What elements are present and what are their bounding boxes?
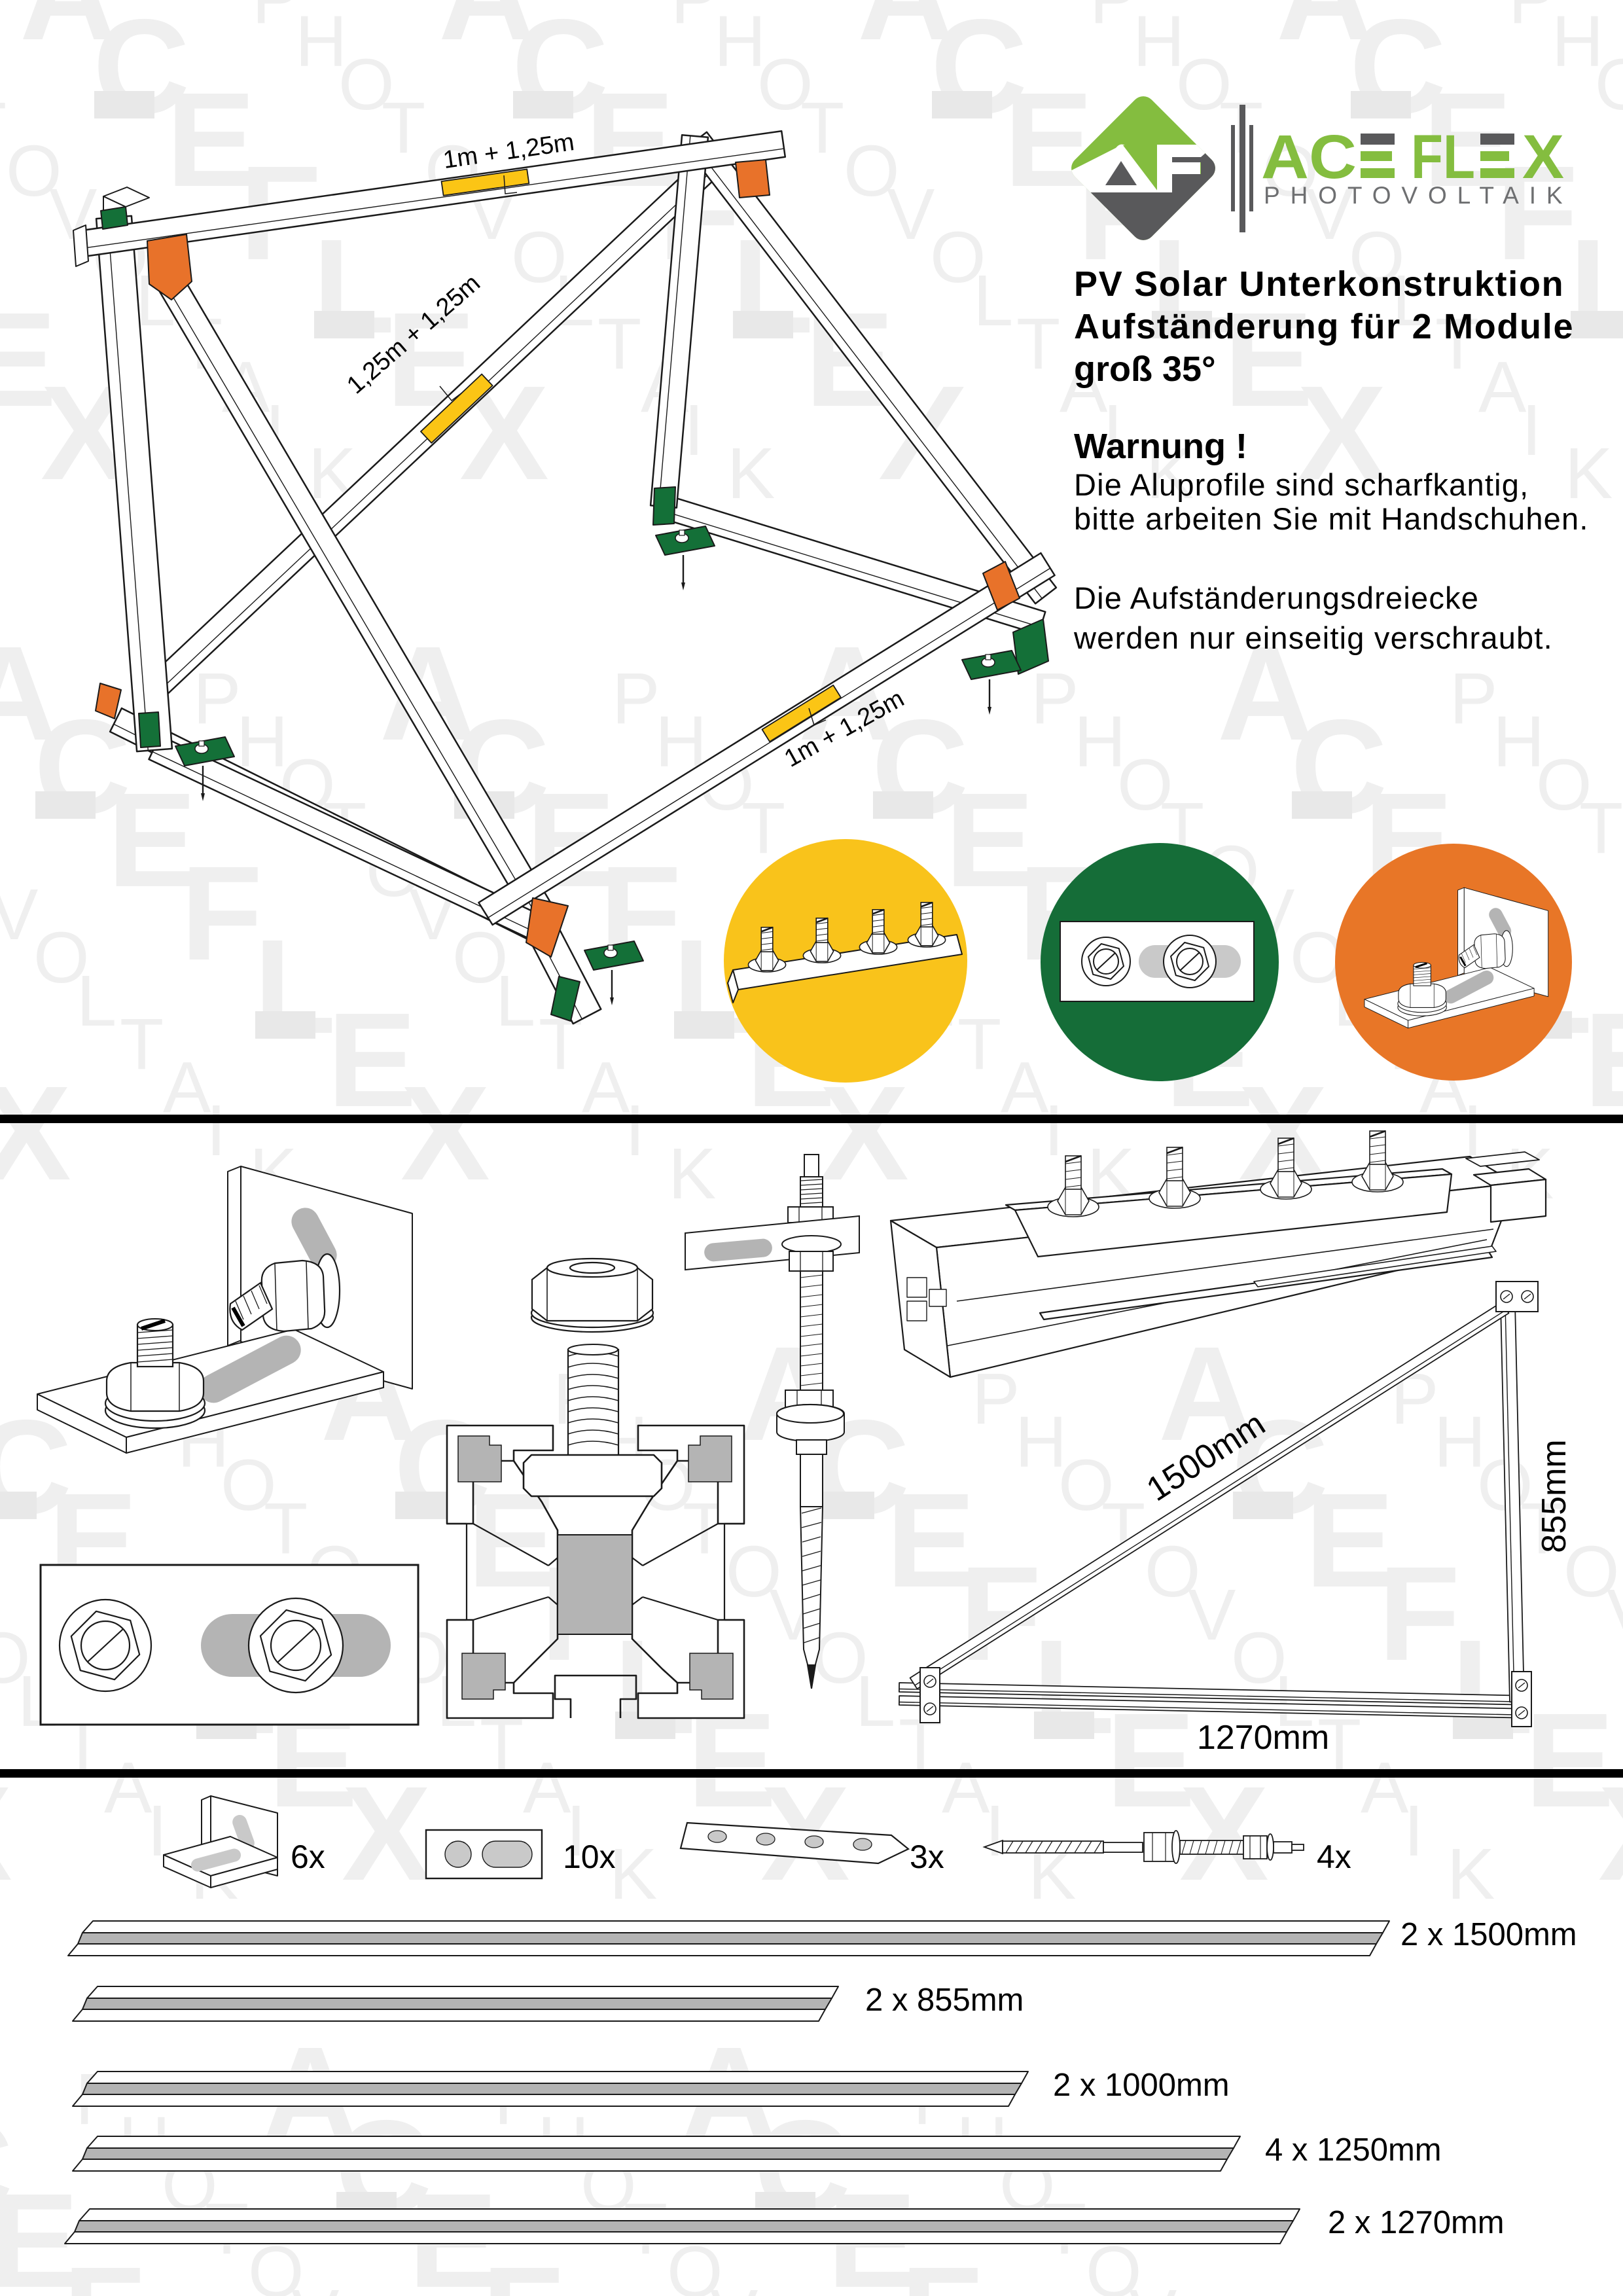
svg-text:V: V xyxy=(710,2275,758,2296)
svg-text:V: V xyxy=(291,2275,339,2296)
svg-text:I: I xyxy=(985,1791,1005,1871)
svg-text:I: I xyxy=(684,390,704,471)
svg-text:4x: 4x xyxy=(1317,1839,1351,1875)
svg-text:L: L xyxy=(1569,211,1623,361)
svg-text:T: T xyxy=(1016,304,1060,384)
svg-text:werden nur einseitig verschrau: werden nur einseitig verschraubt. xyxy=(1073,620,1553,655)
svg-text:K: K xyxy=(668,1134,716,1214)
svg-text:Aufständerung für 2 Module: Aufständerung für 2 Module xyxy=(1074,307,1574,346)
svg-text:A: A xyxy=(942,1748,990,1828)
svg-text:L: L xyxy=(495,961,535,1041)
svg-text:F: F xyxy=(63,2239,145,2296)
svg-text:F: F xyxy=(1378,1539,1460,1689)
svg-text:PHOTOVOLTAIK: PHOTOVOLTAIK xyxy=(1264,182,1573,209)
svg-text:P: P xyxy=(193,658,241,739)
svg-text:T: T xyxy=(120,1004,164,1085)
svg-text:10x: 10x xyxy=(563,1839,616,1875)
svg-text:K: K xyxy=(1447,1834,1495,1914)
svg-text:V: V xyxy=(0,874,38,955)
svg-text:P: P xyxy=(1508,0,1556,39)
svg-text:2 x 1500mm: 2 x 1500mm xyxy=(1400,1917,1577,1952)
svg-text:F: F xyxy=(181,838,262,988)
svg-text:2 x 1270mm: 2 x 1270mm xyxy=(1328,2205,1505,2240)
svg-text:X: X xyxy=(0,1759,12,1909)
svg-text:X: X xyxy=(1179,1759,1269,1909)
svg-text:I: I xyxy=(1522,390,1542,471)
svg-text:L: L xyxy=(77,961,116,1041)
svg-text:855mm: 855mm xyxy=(1535,1439,1573,1552)
svg-text:E: E xyxy=(1584,985,1623,1135)
svg-text:bitte arbeiten Sie mit Handsch: bitte arbeiten Sie mit Handschuhen. xyxy=(1074,501,1589,536)
svg-text:X: X xyxy=(342,1759,431,1909)
svg-text:Warnung !: Warnung ! xyxy=(1074,427,1247,466)
svg-text:2 x 855mm: 2 x 855mm xyxy=(865,1982,1024,2018)
svg-text:X: X xyxy=(401,1058,490,1208)
svg-text:F: F xyxy=(482,2239,563,2296)
svg-text:Die Aluprofile sind scharfkant: Die Aluprofile sind scharfkantig, xyxy=(1074,467,1529,502)
svg-text:PV Solar Unterkonstruktion: PV Solar Unterkonstruktion xyxy=(1074,264,1564,304)
svg-text:6x: 6x xyxy=(291,1839,325,1875)
svg-text:V: V xyxy=(1129,2275,1177,2296)
svg-text:V: V xyxy=(1607,1575,1623,1655)
svg-text:Die Aufständerungsdreiecke: Die Aufständerungsdreiecke xyxy=(1074,581,1479,615)
svg-text:L: L xyxy=(313,211,395,361)
svg-text:F: F xyxy=(901,2239,982,2296)
svg-text:1270mm: 1270mm xyxy=(1197,1719,1329,1757)
svg-text:T: T xyxy=(264,1488,308,1569)
svg-text:T: T xyxy=(597,304,641,384)
svg-text:L: L xyxy=(254,912,336,1062)
svg-text:A: A xyxy=(523,1748,571,1828)
svg-text:2 x 1000mm: 2 x 1000mm xyxy=(1053,2068,1230,2103)
svg-text:T: T xyxy=(957,1004,1001,1085)
svg-text:3x: 3x xyxy=(910,1839,944,1875)
svg-text:P: P xyxy=(671,0,719,39)
svg-text:K: K xyxy=(727,433,775,514)
svg-text:A: A xyxy=(104,1748,152,1828)
svg-text:P: P xyxy=(1031,658,1079,739)
svg-text:V: V xyxy=(887,174,935,255)
svg-text:I: I xyxy=(206,1090,226,1171)
svg-text:4 x 1250mm: 4 x 1250mm xyxy=(1265,2132,1442,2168)
svg-text:P: P xyxy=(612,658,660,739)
svg-text:P: P xyxy=(1450,658,1497,739)
svg-text:I: I xyxy=(1044,1090,1064,1171)
svg-text:A: A xyxy=(1478,347,1527,427)
svg-text:O: O xyxy=(1595,45,1623,125)
svg-text:groß 35°: groß 35° xyxy=(1074,350,1216,389)
svg-text:X: X xyxy=(0,1058,71,1208)
svg-text:K: K xyxy=(609,1834,657,1914)
svg-text:I: I xyxy=(625,1090,645,1171)
svg-text:T: T xyxy=(1579,788,1623,869)
svg-text:I: I xyxy=(1404,1791,1424,1871)
svg-text:L: L xyxy=(973,260,1013,341)
svg-text:T: T xyxy=(800,88,844,168)
svg-text:T: T xyxy=(741,788,785,869)
svg-text:T: T xyxy=(382,88,425,168)
svg-text:P: P xyxy=(1090,0,1137,39)
svg-text:V: V xyxy=(1188,1575,1236,1655)
svg-text:P: P xyxy=(252,0,300,39)
svg-text:X: X xyxy=(1598,1759,1623,1909)
svg-text:A: A xyxy=(1361,1748,1409,1828)
svg-text:L: L xyxy=(855,1661,895,1742)
